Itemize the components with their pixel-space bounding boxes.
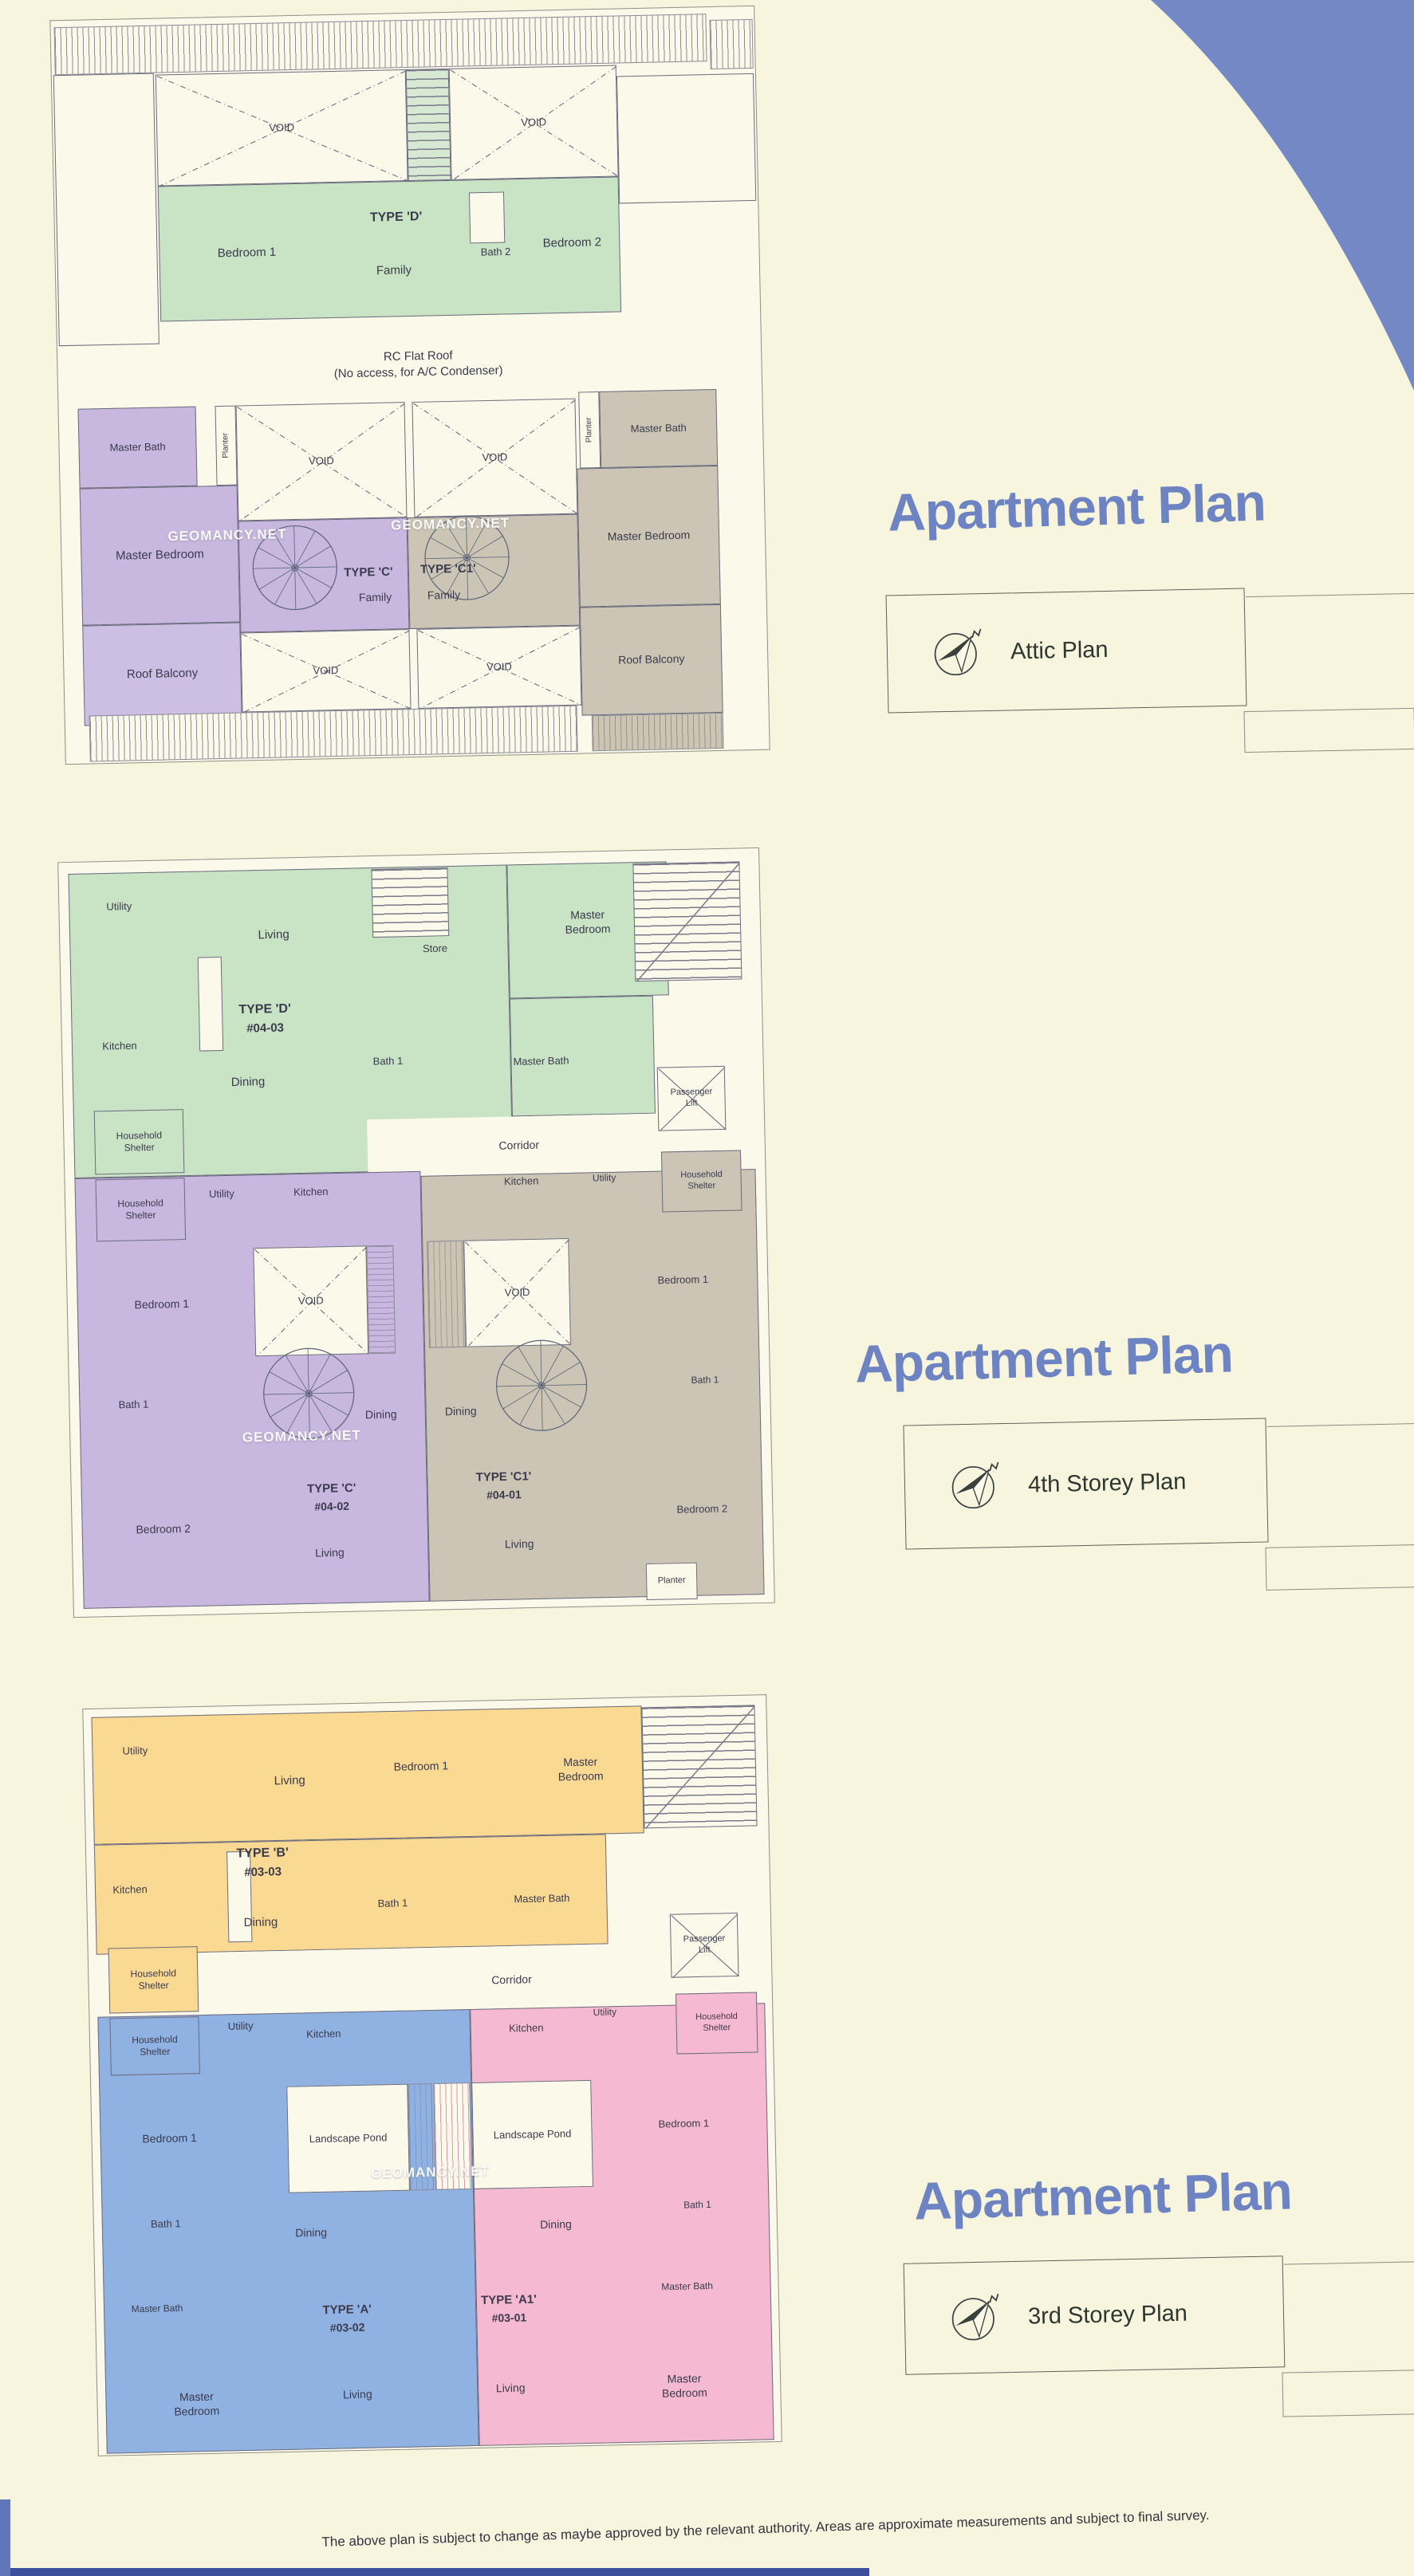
frame-tab xyxy=(1243,708,1414,753)
void-upper-right-label: VOID xyxy=(450,66,618,179)
side-rooms-left xyxy=(53,73,160,347)
type-c1-unit xyxy=(421,1169,765,1602)
household-shelter-d-label: Household Shelter xyxy=(95,1110,184,1174)
plan-label-3rd: 3rd Storey Plan xyxy=(1028,2300,1188,2330)
bath2-fixtures xyxy=(469,191,505,243)
balcony-railing xyxy=(89,706,578,762)
household-shelter-a: Household Shelter xyxy=(109,2016,199,2075)
void-lower-left: VOID xyxy=(240,629,411,712)
spiral-stair-c xyxy=(262,1347,356,1441)
type-d-attic-unit xyxy=(158,176,621,321)
household-shelter-b-label: Household Shelter xyxy=(109,1947,199,2012)
plan-label-4th: 4th Storey Plan xyxy=(1028,1469,1187,1498)
passenger-lift-label: Passenger Lift xyxy=(658,1067,726,1131)
type-d-bath-wing xyxy=(510,996,656,1117)
kitchen-island xyxy=(198,957,223,1052)
master-bedroom-left: Master Bedroom xyxy=(80,486,241,626)
plan-label-box-attic: Attic Plan xyxy=(886,588,1247,713)
roof-balcony-right: Roof Balcony xyxy=(580,604,723,716)
master-bedroom-right-label: Master Bedroom xyxy=(577,466,720,607)
household-shelter-a-label: Household Shelter xyxy=(110,2017,199,2075)
third-storey-plan-drawing: Passenger LiftHousehold ShelterHousehold… xyxy=(82,1694,782,2456)
type-a-unit xyxy=(97,2009,479,2454)
type-a1-unit xyxy=(470,2003,774,2446)
plan-label-attic: Attic Plan xyxy=(1010,636,1109,664)
void-lower-left-label: VOID xyxy=(241,630,410,711)
void-edge-c1 xyxy=(427,1241,466,1348)
void-upper-right: VOID xyxy=(449,65,619,179)
left-edge-strip xyxy=(0,2499,10,2576)
frame-tab xyxy=(1282,2370,1414,2417)
attic-plan-drawing: VOIDVOIDBedroom 1TYPE 'D'FamilyBath 2Bed… xyxy=(49,6,770,765)
corridor-area xyxy=(367,1113,679,1177)
planter-left: Planter xyxy=(215,406,237,486)
void-c1-label: VOID xyxy=(464,1239,570,1347)
household-shelter-c1: Household Shelter xyxy=(661,1150,742,1212)
corner-swoosh-decoration xyxy=(1117,0,1414,399)
roof-ridge-band-right xyxy=(709,19,753,69)
kitchen-island xyxy=(226,1851,252,1943)
pond-edge-a xyxy=(408,2083,434,2191)
frame-line xyxy=(1267,1423,1414,1427)
side-rooms-right xyxy=(616,73,756,204)
external-staircase xyxy=(641,1705,757,1828)
void-lower-right: VOID xyxy=(416,626,581,709)
plan-label-box-4th: 4th Storey Plan xyxy=(903,1418,1268,1549)
fourth-storey-plan-drawing: Passenger LiftHousehold ShelterHousehold… xyxy=(57,848,775,1618)
void-c1: VOID xyxy=(463,1238,571,1347)
corridor-area xyxy=(208,1942,703,2015)
footer-navy-bar xyxy=(8,2568,869,2576)
landscape-pond-a1: Landscape Pond xyxy=(471,2080,593,2189)
roof-balcony-left-label: Roof Balcony xyxy=(83,623,242,726)
plan-label-box-3rd: 3rd Storey Plan xyxy=(904,2255,1286,2375)
void-c: VOID xyxy=(253,1245,368,1356)
household-shelter-c-label: Household Shelter xyxy=(96,1178,186,1241)
void-mid-right-label: VOID xyxy=(412,399,577,517)
household-shelter-d: Household Shelter xyxy=(94,1109,185,1174)
household-shelter-c: Household Shelter xyxy=(96,1178,187,1241)
void-mid-right: VOID xyxy=(412,399,577,517)
type-b-unit-mid xyxy=(94,1834,609,1954)
master-bath-left: Master Bath xyxy=(78,407,198,489)
common-staircase xyxy=(371,867,449,938)
north-compass-icon xyxy=(949,2292,999,2342)
rc-flat-roof-label: RC Flat Roof (No access, for A/C Condens… xyxy=(333,347,503,381)
master-bedroom-left-label: Master Bedroom xyxy=(81,486,240,625)
north-compass-icon xyxy=(932,627,982,678)
pond-divider xyxy=(433,2082,472,2190)
planter: Planter xyxy=(646,1563,698,1600)
spiral-stair-c1 xyxy=(423,513,510,601)
household-shelter-a1: Household Shelter xyxy=(675,1992,758,2054)
external-staircase xyxy=(632,861,742,981)
void-mid-left: VOID xyxy=(235,402,407,521)
master-bath-right: Master Bath xyxy=(599,389,718,468)
passenger-lift-label: Passenger Lift xyxy=(671,1913,739,1977)
staircase xyxy=(406,69,451,181)
frame-line xyxy=(1284,2261,1414,2264)
passenger-lift: Passenger Lift xyxy=(670,1913,739,1978)
frame-tab xyxy=(1265,1544,1414,1591)
household-shelter-a1-label: Household Shelter xyxy=(676,1992,758,2053)
void-edge-c xyxy=(366,1245,396,1355)
void-lower-right-label: VOID xyxy=(417,627,581,708)
master-bath-right-label: Master Bath xyxy=(600,390,717,467)
balcony-railing-right xyxy=(592,713,724,751)
apartment-plan-heading-attic: Apartment Plan xyxy=(887,471,1266,542)
master-bedroom-right: Master Bedroom xyxy=(577,466,721,608)
void-upper-left: VOID xyxy=(156,69,408,187)
apartment-plan-heading-3rd: Apartment Plan xyxy=(913,2160,1293,2231)
landscape-pond-a1-label: Landscape Pond xyxy=(472,2081,593,2189)
planter-label: Planter xyxy=(647,1563,697,1599)
frame-line xyxy=(1246,593,1414,597)
landscape-pond-a-label: Landscape Pond xyxy=(287,2085,409,2193)
master-bath-left-label: Master Bath xyxy=(79,407,197,488)
spiral-stair-c xyxy=(251,524,339,612)
type-b-unit-top xyxy=(92,1705,644,1844)
roof-balcony-right-label: Roof Balcony xyxy=(581,605,723,715)
spiral-stair-c1 xyxy=(494,1339,589,1433)
void-mid-left-label: VOID xyxy=(237,403,407,520)
landscape-pond-a: Landscape Pond xyxy=(286,2084,410,2193)
void-upper-left-label: VOID xyxy=(156,70,408,186)
void-c-label: VOID xyxy=(254,1246,368,1355)
north-compass-icon xyxy=(949,1461,999,1511)
brochure-page: VOIDVOIDBedroom 1TYPE 'D'FamilyBath 2Bed… xyxy=(0,0,1414,2576)
passenger-lift: Passenger Lift xyxy=(657,1066,727,1131)
apartment-plan-heading-4th: Apartment Plan xyxy=(854,1323,1234,1394)
planter-right: Planter xyxy=(578,391,601,469)
household-shelter-c1-label: Household Shelter xyxy=(662,1150,742,1211)
roof-balcony-left: Roof Balcony xyxy=(82,623,242,726)
household-shelter-b: Household Shelter xyxy=(108,1946,199,2013)
disclaimer-text: The above plan is subject to change as m… xyxy=(207,2504,1324,2554)
